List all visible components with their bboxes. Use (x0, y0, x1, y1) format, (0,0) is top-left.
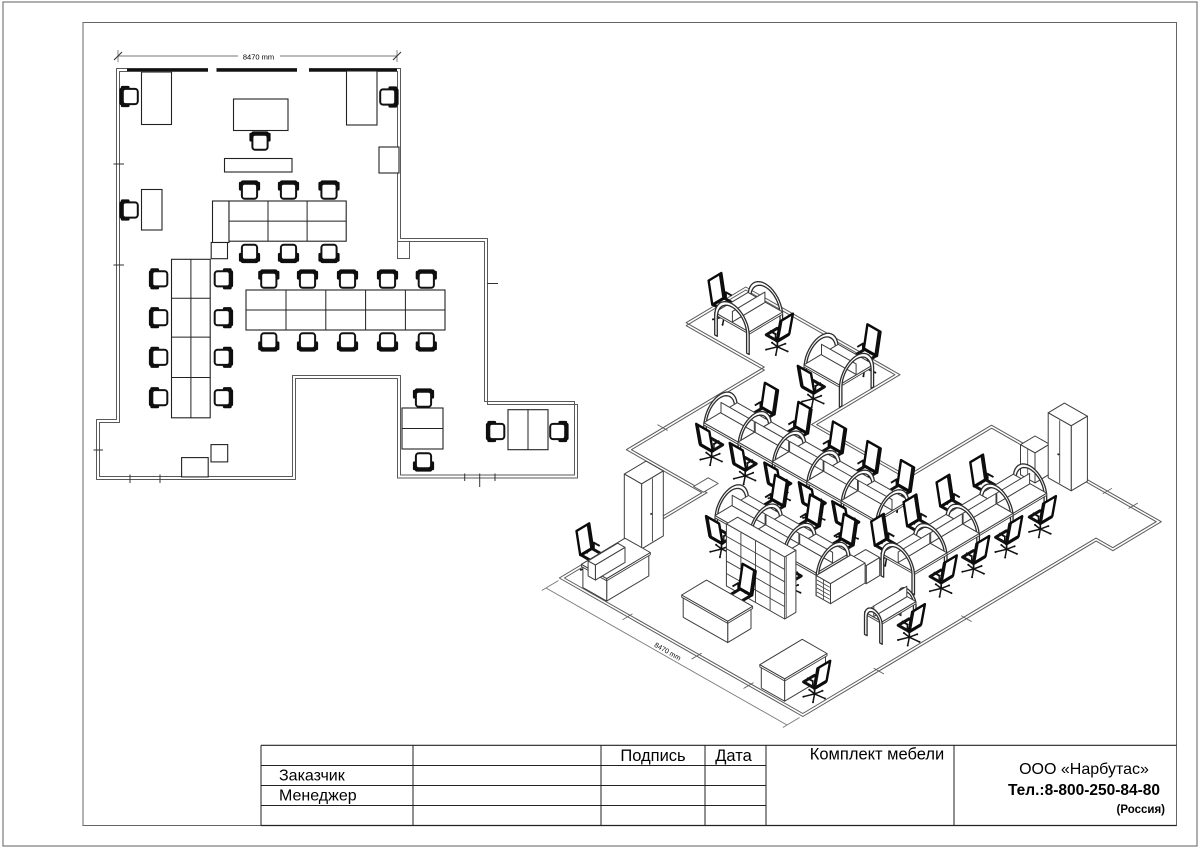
svg-text:Менеджер: Менеджер (279, 788, 357, 805)
svg-text:ООО «Нарбутас»: ООО «Нарбутас» (1019, 761, 1149, 778)
svg-text:Тел.:8-800-250-84-80: Тел.:8-800-250-84-80 (1008, 782, 1160, 799)
svg-text:(Россия): (Россия) (1117, 804, 1166, 816)
svg-text:Заказчик: Заказчик (279, 768, 346, 785)
svg-text:Дата: Дата (715, 747, 752, 765)
svg-text:Комплект мебели: Комплект мебели (810, 746, 945, 764)
svg-text:Подпись: Подпись (620, 747, 685, 765)
svg-text:8470 mm: 8470 mm (243, 53, 274, 62)
